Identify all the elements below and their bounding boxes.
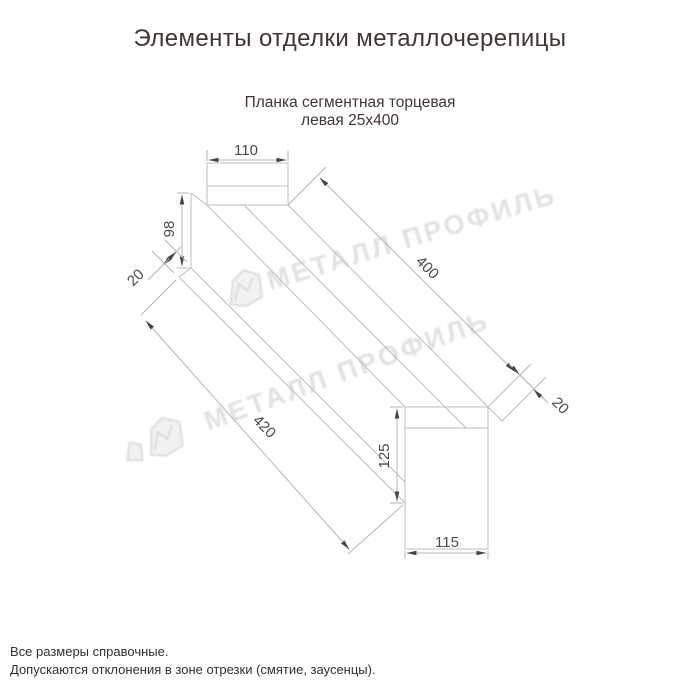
dim-125-label: 125 xyxy=(376,443,393,468)
dim-20-right-label: 20 xyxy=(548,394,572,418)
watermark-text: МЕТАЛЛ ПРОФИЛЬ xyxy=(263,179,560,296)
dim-115-label: 115 xyxy=(435,534,459,551)
dimension-left-hem: 20 xyxy=(124,240,187,290)
dimension-end-cap-width: 115 xyxy=(405,534,488,559)
dim-110-label: 110 xyxy=(234,142,258,159)
watermark-lower: МЕТАЛЛ ПРОФИЛЬ xyxy=(118,301,495,468)
dimension-total-length: 420 xyxy=(141,280,403,554)
technical-drawing: МЕТАЛЛ ПРОФИЛЬ МЕТАЛЛ ПРОФИЛЬ xyxy=(0,0,700,700)
watermark-text: МЕТАЛЛ ПРОФИЛЬ xyxy=(200,305,493,436)
dimension-right-hem: 20 xyxy=(509,364,572,418)
footnote-line1: Все размеры справочные. xyxy=(10,643,376,661)
footnote: Все размеры справочные. Допускаются откл… xyxy=(10,643,376,678)
brand-logo-icon xyxy=(122,439,146,465)
dim-98-label: 98 xyxy=(161,221,178,238)
dimension-top-flange-width: 110 xyxy=(207,142,288,161)
dim-400-label: 400 xyxy=(412,253,442,283)
dimension-side-height: 98 xyxy=(161,193,189,268)
dimension-end-cap-height: 125 xyxy=(376,407,403,503)
watermark-upper: МЕТАЛЛ ПРОФИЛЬ xyxy=(222,176,561,310)
catalog-drawing-page: Элементы отделки металлочерепицы Планка … xyxy=(0,0,700,700)
footnote-line2: Допускаются отклонения в зоне отрезки (с… xyxy=(10,661,376,679)
dim-20-left-label: 20 xyxy=(124,266,148,290)
